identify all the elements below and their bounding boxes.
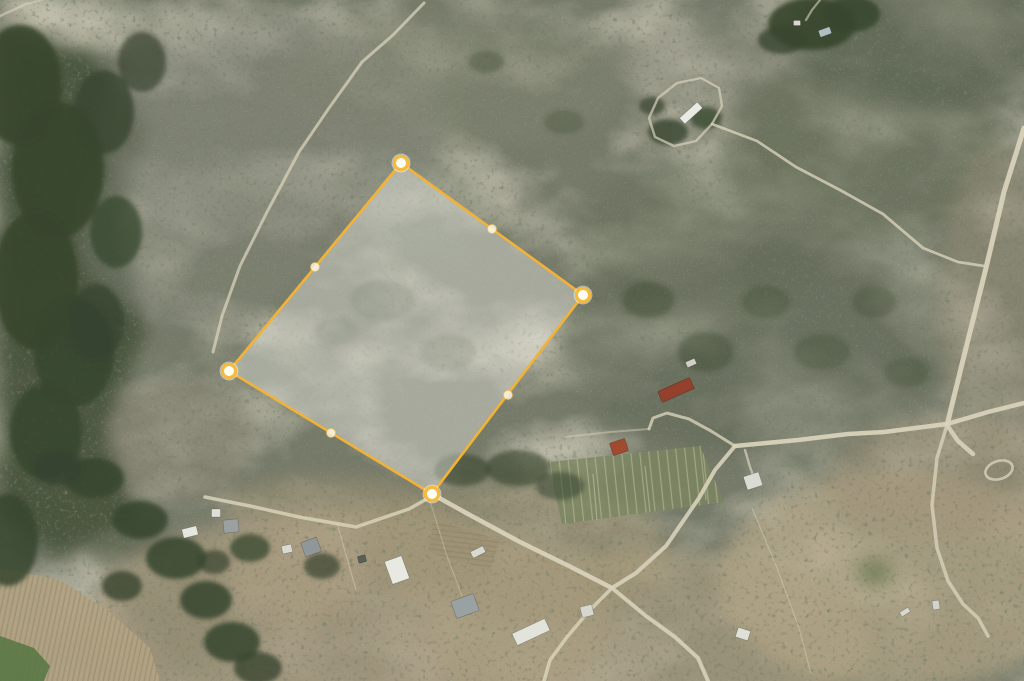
- polygon-vertex-handle[interactable]: [222, 364, 235, 377]
- screenshot-root: [0, 0, 1024, 681]
- shed: [794, 21, 801, 26]
- tree-cluster: [198, 550, 230, 574]
- polygon-midpoint-handle[interactable]: [311, 263, 320, 272]
- tree-cluster: [230, 534, 270, 562]
- tree-cluster: [678, 332, 734, 372]
- shed: [281, 544, 292, 554]
- house: [223, 519, 239, 533]
- shed: [212, 509, 221, 517]
- tree-cluster: [112, 501, 168, 539]
- tree-cluster: [794, 334, 850, 370]
- tree-cluster: [304, 553, 340, 579]
- tree-cluster: [118, 32, 166, 92]
- tree-cluster: [68, 284, 124, 360]
- polygon-vertex-handle[interactable]: [425, 487, 438, 500]
- tree-cluster: [544, 110, 584, 134]
- tree-cluster: [622, 282, 674, 318]
- tree-cluster: [180, 581, 232, 619]
- polygon-midpoint-handle[interactable]: [504, 391, 513, 400]
- polygon-midpoint-handle[interactable]: [488, 225, 497, 234]
- tree-cluster: [32, 450, 84, 486]
- polygon-midpoint-handle[interactable]: [327, 429, 336, 438]
- polygon-vertex-handle[interactable]: [576, 288, 589, 301]
- tree-cluster: [146, 537, 206, 579]
- tree-cluster: [742, 286, 790, 318]
- tree-cluster: [536, 472, 584, 500]
- tree-cluster: [90, 196, 142, 268]
- tree-cluster: [852, 286, 896, 318]
- polygon-vertex-handle[interactable]: [394, 156, 407, 169]
- satellite-map-canvas[interactable]: [0, 0, 1024, 681]
- tree-cluster: [468, 51, 504, 73]
- tree-cluster: [884, 357, 928, 387]
- tree-cluster: [758, 26, 806, 54]
- vehicle: [932, 600, 940, 610]
- tree-cluster: [102, 571, 142, 601]
